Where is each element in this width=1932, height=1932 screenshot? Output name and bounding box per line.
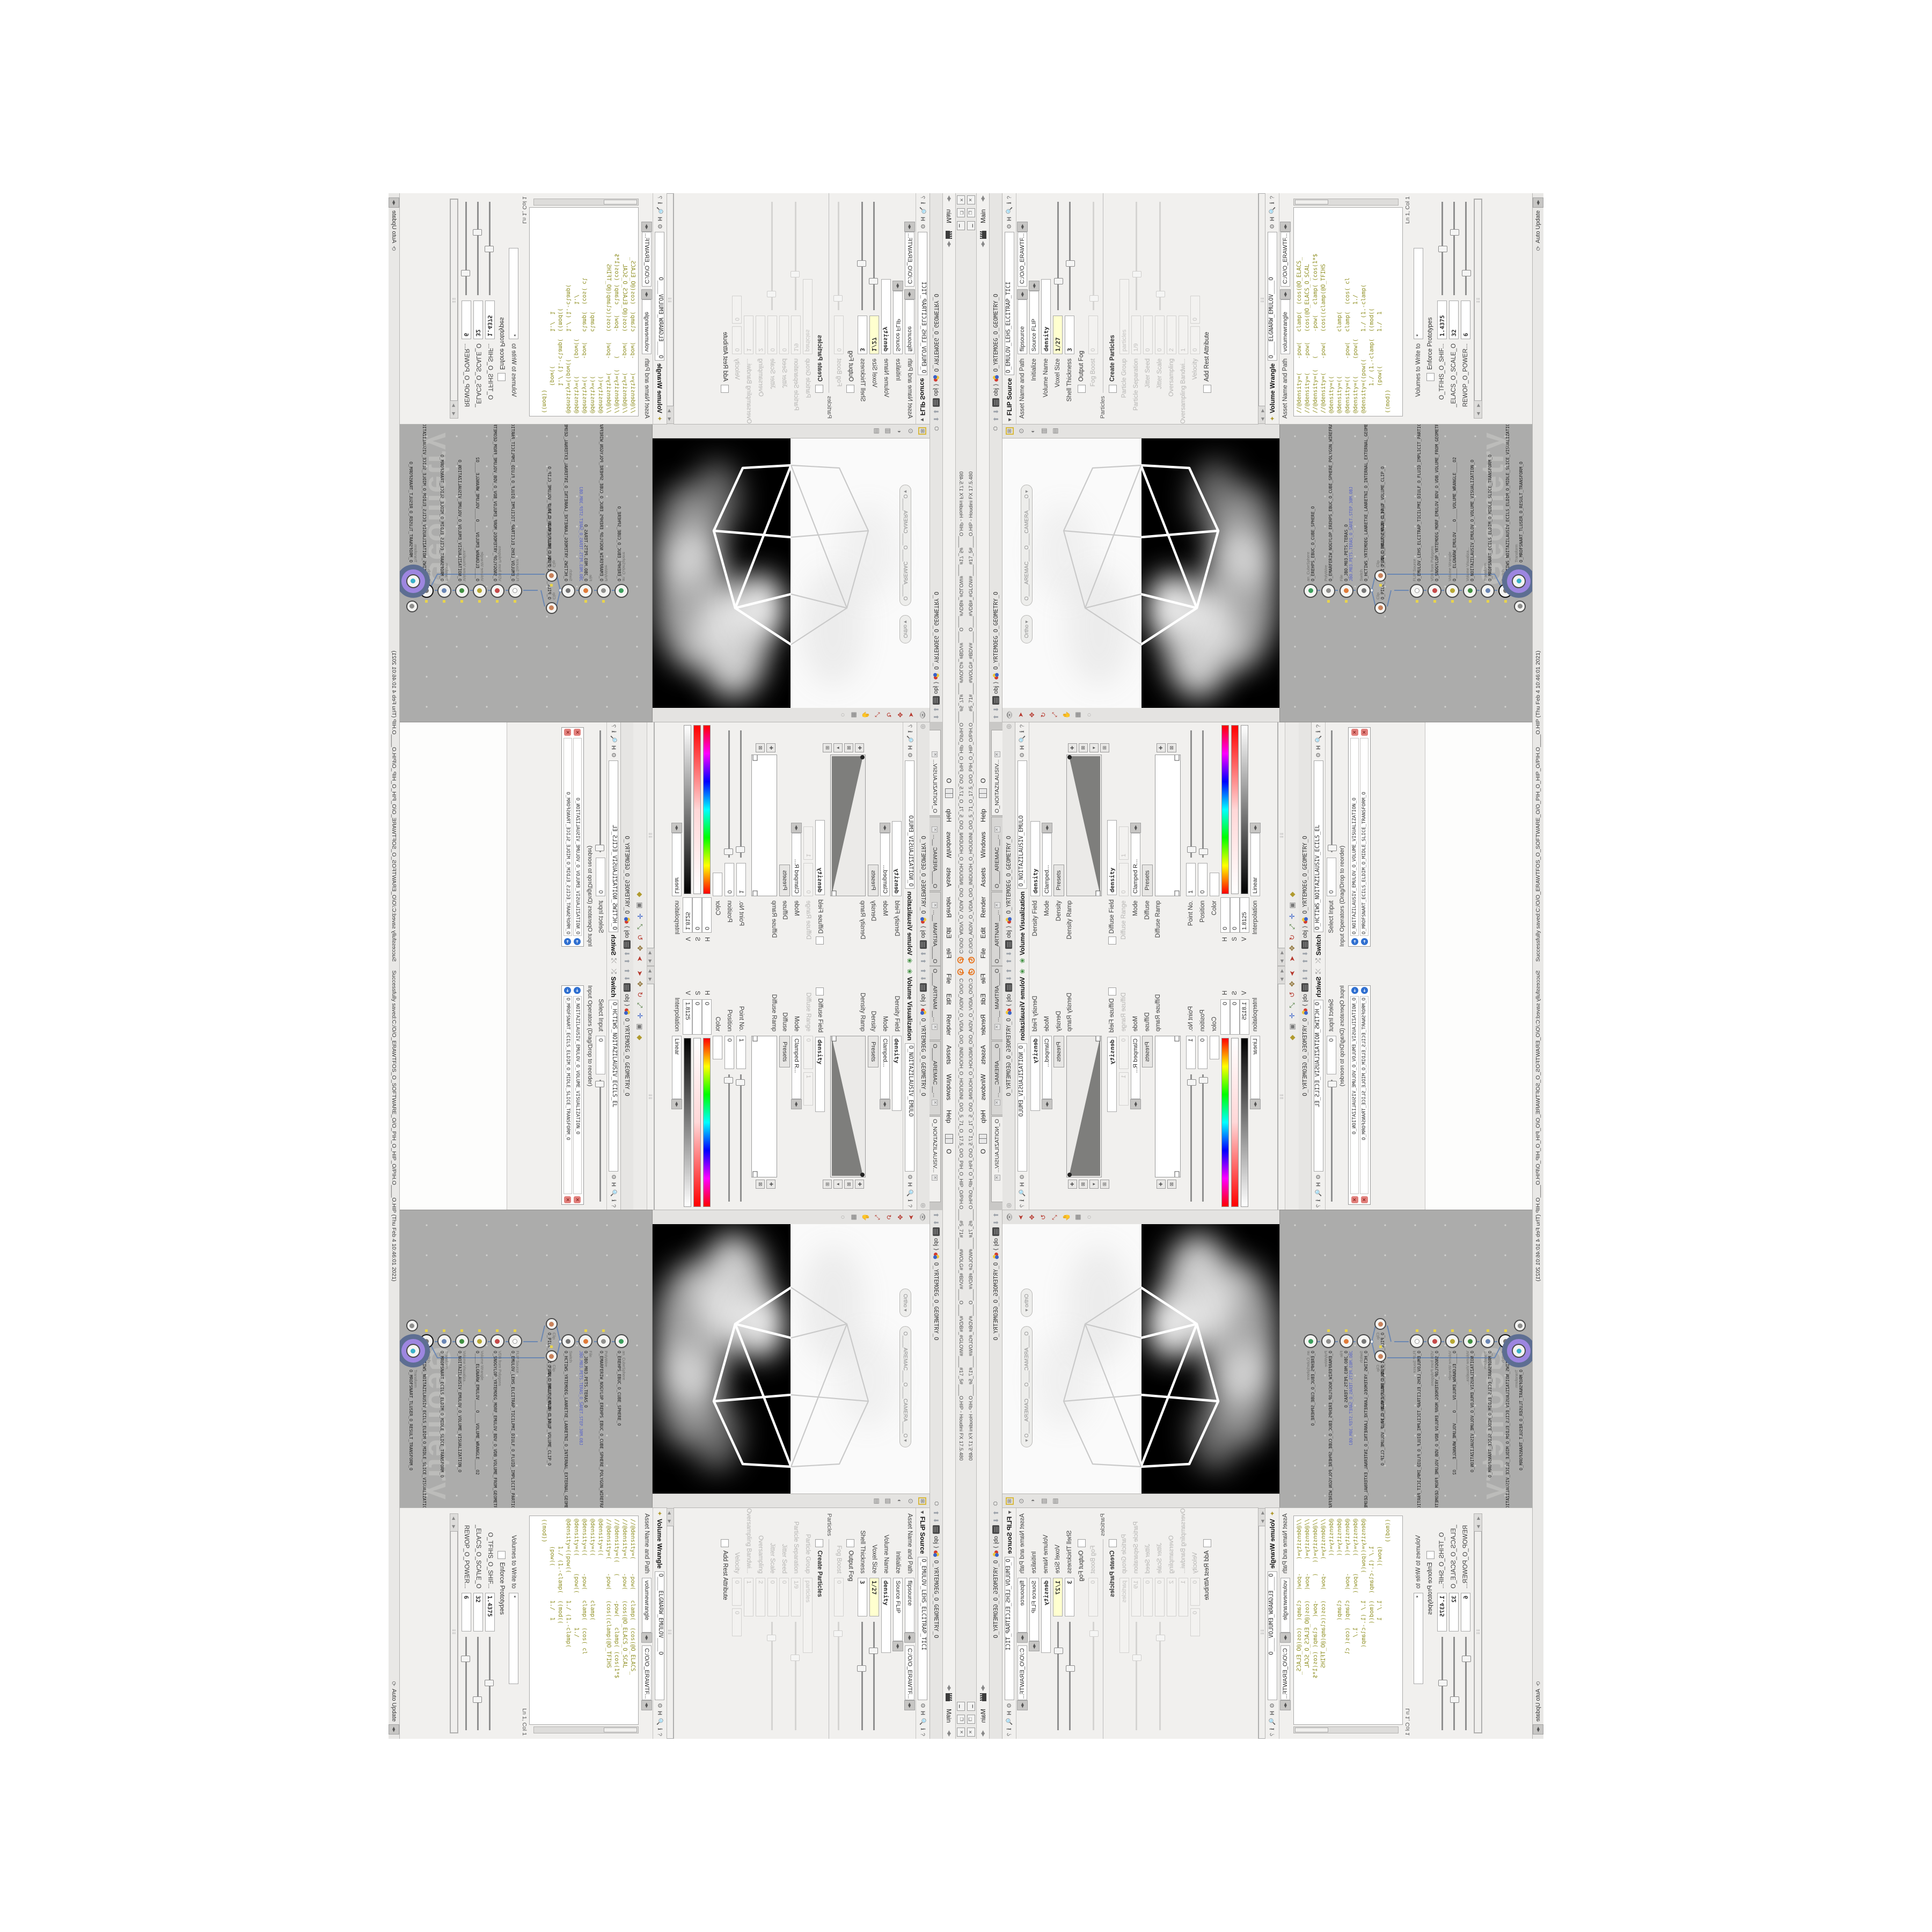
fog-boost-input[interactable]: 0 xyxy=(1088,1578,1098,1616)
info-icon[interactable]: ℹ xyxy=(1315,1199,1322,1202)
handles-tool-icon[interactable]: ✛ xyxy=(1288,1013,1297,1019)
velocity-input-y[interactable]: 0 xyxy=(1190,296,1200,324)
tab-camera[interactable]: O____AREMAC __...✕ xyxy=(930,1041,941,1115)
saturation-input[interactable]: 0 xyxy=(692,897,702,933)
remove-input-icon[interactable]: ✕ xyxy=(1361,729,1368,736)
shell-thickness-input[interactable]: 3 xyxy=(1065,1578,1074,1616)
asset-op-spinner[interactable]: ◀▶ xyxy=(1017,289,1028,299)
asset-op-spinner[interactable]: ◀▶ xyxy=(1017,1633,1028,1643)
initialize-spinner[interactable]: ◀▶ xyxy=(892,281,903,291)
create-particles-checkbox[interactable] xyxy=(816,385,824,393)
info-icon[interactable]: ℹ xyxy=(919,202,926,204)
ramp-expand-icon[interactable]: ⊞ xyxy=(1100,1180,1109,1189)
mode-select[interactable]: Clamped... xyxy=(880,833,890,896)
ramp-add-icon[interactable]: ✚ xyxy=(855,1180,864,1189)
diffuse-range-min[interactable]: 0 xyxy=(803,863,813,896)
diffuse-range-min[interactable]: 0 xyxy=(1119,1036,1129,1069)
info-icon[interactable]: ℹ xyxy=(1269,1728,1276,1730)
ramp-delete-icon[interactable]: ⊠ xyxy=(1079,743,1088,752)
asset-op-spinner[interactable]: ◀▶ xyxy=(1280,289,1291,299)
diffuse-range-min[interactable]: 0 xyxy=(803,1036,813,1069)
network-node[interactable]: an_CubeSphereO_EREHPS_EBUC_O_CUBE_SPHERE… xyxy=(614,1329,628,1426)
switch-name-field[interactable]: O_HCTIWS_NOITAZILAUSIV_ECILS_EL xyxy=(1314,760,1323,932)
asset-op-field[interactable]: flipsource xyxy=(905,1578,914,1633)
nav-down-icon[interactable]: ⬇ xyxy=(1005,951,1013,956)
scroll-left-icon[interactable]: ◀ xyxy=(1260,1509,1265,1517)
tab-close-icon[interactable]: ✕ xyxy=(932,1024,938,1030)
path-node[interactable]: O_YRTEMOEG_O_GEOMETRY_O xyxy=(993,1262,999,1340)
density-field-input[interactable]: density xyxy=(1030,821,1040,896)
network-node[interactable]: FileO_JBO.M03.PETS.TERAS_OJBO.M03.PETS.T… xyxy=(1339,487,1353,603)
lasso-tool-icon[interactable]: ◌ xyxy=(839,1215,847,1219)
network-node-selected[interactable]: TransformO_MROFSNART_TLUSER_O_RESULT_TRA… xyxy=(1512,1339,1526,1470)
view-tool-icon[interactable]: 👁 xyxy=(919,1213,926,1221)
info-icon[interactable]: ℹ xyxy=(656,202,663,204)
path-node[interactable]: O_YRTEMOEG_O_GEOMETRY_O xyxy=(1006,836,1012,913)
value-slider[interactable] xyxy=(1241,1038,1248,1207)
menu-file[interactable]: File xyxy=(945,944,954,963)
volumes-to-write-input[interactable]: * xyxy=(509,248,518,339)
diffuse-mode-spinner[interactable]: ◀▶ xyxy=(791,1099,802,1109)
point-no-slider[interactable] xyxy=(741,1074,742,1202)
density-presets-button[interactable]: Presets xyxy=(1053,1036,1064,1067)
jitter-seed-input[interactable]: 0 xyxy=(1143,316,1153,354)
scroll-left-icon[interactable]: ◀ xyxy=(648,957,653,965)
help-icon[interactable]: ? xyxy=(907,1204,913,1207)
desktop-prev-icon[interactable]: ◀▶ xyxy=(946,242,952,247)
velocity-input-y[interactable]: 0 xyxy=(732,296,742,324)
oversampling-bandwidth-input[interactable]: 1 xyxy=(744,1578,753,1616)
desktop-next-icon[interactable]: ◀▶ xyxy=(980,1730,986,1736)
gear-icon[interactable]: ⚙ xyxy=(1315,1174,1322,1180)
shell-thickness-input[interactable]: 3 xyxy=(1065,316,1074,354)
network-node[interactable]: FileO_JBO.M03.PETS.TERAS_OJBO.M03.PETS.T… xyxy=(1339,1329,1353,1445)
move-tool-icon[interactable]: ✥ xyxy=(636,945,645,951)
nav-up-icon[interactable]: ⬆ xyxy=(624,968,631,974)
reorder-arrow-icon[interactable]: ➜ xyxy=(574,987,581,994)
select-tool-icon[interactable]: ➤ xyxy=(908,1214,915,1220)
power-param-input[interactable]: 6 xyxy=(462,301,471,339)
path-node[interactable]: O_YRTEMOEG_O_GEOMETRY_O xyxy=(993,1560,999,1638)
camera-icon[interactable]: ⊙ xyxy=(907,1498,914,1504)
asset-op-spinner[interactable]: ◀▶ xyxy=(904,1633,915,1643)
search-icon[interactable]: 🔍 xyxy=(1269,207,1276,214)
update-mode-spinner[interactable]: ◀▶ xyxy=(389,197,399,208)
projection-pill[interactable]: Ortho ▾ xyxy=(899,1289,911,1317)
reorder-arrow-icon[interactable]: ➜ xyxy=(1361,938,1368,945)
mode-select[interactable]: Clamped... xyxy=(880,1036,890,1099)
rotate-tool-icon[interactable]: ↻ xyxy=(1040,712,1047,718)
help-icon[interactable]: ? xyxy=(1006,1733,1013,1736)
wrangle-hscrollbar[interactable]: ◀ ▶ ⣿⣿ xyxy=(450,199,458,419)
tab-close-icon[interactable]: ✕ xyxy=(932,1100,938,1106)
mode-spinner[interactable]: ◀▶ xyxy=(880,823,890,833)
network-node[interactable]: TransformO_MROFSNART_ECILS_ELDIM_O_MIDLE… xyxy=(437,455,451,603)
restore-button[interactable]: ❐ xyxy=(967,208,975,217)
scroll-right-icon[interactable]: ▶ xyxy=(452,401,457,409)
reorder-arrow-icon[interactable]: ➜ xyxy=(1351,987,1358,994)
oversampling-input[interactable]: 2 xyxy=(756,1578,765,1616)
code-vscrollbar[interactable] xyxy=(533,1726,639,1733)
network-node[interactable]: Volume Visualiza...O_NOITAZILAUSIV_EMULO… xyxy=(455,460,469,603)
wrangle-hscrollbar[interactable]: ◀ ▶ ⣿⣿ xyxy=(450,1513,458,1733)
nav-down-icon[interactable]: ⬇ xyxy=(920,951,927,956)
ramp-delete-icon[interactable]: ⊠ xyxy=(1079,1180,1088,1189)
desktop-selector[interactable]: Main xyxy=(945,1704,954,1727)
volume-name-input[interactable]: density xyxy=(1041,1578,1051,1653)
saturation-slider[interactable] xyxy=(693,725,701,894)
nav-down-icon[interactable]: ⬇ xyxy=(624,951,631,956)
network-node[interactable]: PolyWireO_EMARFERIW_NOGYLOP_EREHPS_EBUC_… xyxy=(1321,1329,1335,1508)
select-tool-icon[interactable]: ➤ xyxy=(636,956,645,962)
reorder-arrow-icon[interactable]: ➜ xyxy=(1361,987,1368,994)
help-icon[interactable]: ? xyxy=(920,196,926,199)
menu-help[interactable]: Help xyxy=(978,804,988,826)
fog-boost-slider[interactable] xyxy=(838,202,840,310)
network-node[interactable]: SwitchO_HCTIWS_YRTEMOEG_LANRETXE_LANRETN… xyxy=(561,424,575,603)
minimize-button[interactable]: ▁ xyxy=(957,221,965,230)
volumes-to-write-input[interactable]: * xyxy=(1414,248,1423,339)
menu-windows[interactable]: Windows xyxy=(945,1070,954,1104)
jitter-scale-slider[interactable] xyxy=(772,202,773,310)
point-no-slider[interactable] xyxy=(741,730,742,858)
nav-down-icon[interactable]: ⬇ xyxy=(933,1220,940,1225)
particle-separation-slider[interactable] xyxy=(795,202,797,310)
nav-down-icon[interactable]: ⬇ xyxy=(1005,976,1013,981)
particle-group-input[interactable]: particles xyxy=(803,1578,813,1653)
vexpression-editor[interactable]: //@density=( -pow( clamp( (cos(@O_ELACS_… xyxy=(529,207,639,416)
viewport-render[interactable]: Ortho ▾ O____AREMAC____O____CAMERA____O … xyxy=(1002,1224,1280,1494)
ramp-add-icon[interactable]: ✚ xyxy=(1157,1180,1166,1189)
snap-tool-icon[interactable]: ▣ xyxy=(636,1023,645,1030)
path-node[interactable]: O_YRTEMOEG_O_GEOMETRY_O xyxy=(993,294,999,371)
tab-close-icon[interactable]: ✕ xyxy=(994,826,1000,832)
hue-input[interactable]: 0 xyxy=(702,897,712,933)
snapshot-icon[interactable]: ▥ xyxy=(1040,428,1048,434)
snapshot-icon[interactable]: ▥ xyxy=(1040,1498,1048,1504)
ramp-menu-icon[interactable]: ▾ xyxy=(1089,743,1099,752)
network-node[interactable]: ClipO_PILC_EMULOV_FLAH_O_HALF_VOLUME_CLI… xyxy=(546,466,558,587)
diffuse-range-max[interactable]: 1 xyxy=(803,1072,813,1106)
scale-tool-icon[interactable]: ⤢ xyxy=(1051,1214,1059,1220)
grid-toggle-icon[interactable]: ▤ xyxy=(873,428,881,434)
network-node[interactable]: Volume Visualiza...O_NOITAZILAUSIV_EMULO… xyxy=(1463,460,1477,603)
network-node[interactable]: Volume Visualiza...O_NOITAZILAUSIV_EMULO… xyxy=(455,1329,469,1472)
add-rest-checkbox[interactable] xyxy=(1203,1539,1211,1547)
network-node[interactable]: an_CubeSphereO_EREHPS_EBUC_O_CUBE_SPHERE… xyxy=(614,506,628,603)
tab-camera[interactable]: O____AREMAC __...✕ xyxy=(930,817,941,891)
network-node[interactable]: FLIP SourceO_EMULOV_LEHS_ELCITRAP_TICILP… xyxy=(1410,424,1424,603)
path-root[interactable]: obj xyxy=(993,686,999,694)
desktop-prev-icon[interactable]: ◀▶ xyxy=(980,242,986,247)
asset-op-field[interactable]: flipsource xyxy=(905,299,914,354)
pose-tool-icon[interactable]: ✋ xyxy=(1063,1213,1070,1221)
ramp-menu-icon[interactable]: ▾ xyxy=(833,743,843,752)
velocity-input[interactable]: 0 xyxy=(732,326,742,354)
network-node[interactable]: PolyWireO_EMARFERIW_NOGYLOP_EREHPS_EBUC_… xyxy=(1321,424,1335,603)
network-editor[interactable]: Geometry an_C xyxy=(400,424,652,722)
collapse-arrow-icon[interactable]: ▾ xyxy=(1006,418,1013,421)
position-slider[interactable] xyxy=(1202,1074,1204,1202)
scroll-thumb[interactable]: ⣿⣿ xyxy=(647,984,654,1210)
network-node[interactable]: TransformO_MROFSNART_ECILS_ELDIM_O_MIDLE… xyxy=(437,1329,451,1477)
asset-op-spinner[interactable]: ◀▶ xyxy=(1280,1633,1291,1643)
pin-icon[interactable]: ◎ xyxy=(1005,724,1012,729)
search-icon[interactable]: 🔍 xyxy=(919,207,926,214)
move-tool-icon[interactable]: ✥ xyxy=(1288,945,1297,951)
scroll-right-icon[interactable]: ▶ xyxy=(668,406,672,415)
handles-tool-icon[interactable]: ✛ xyxy=(636,1013,645,1019)
tab-close-icon[interactable]: ✕ xyxy=(932,751,938,757)
density-ramp-widget[interactable]: ✚ ⊠ ▾ ⊞ xyxy=(1066,1036,1102,1177)
reorder-arrow-icon[interactable]: ➜ xyxy=(565,938,572,945)
velocity-input[interactable]: 0 xyxy=(1190,1578,1200,1606)
nav-down-icon[interactable]: ⬇ xyxy=(624,976,631,981)
wrangle-hscrollbar[interactable]: ◀ ▶ ⣿⣿ xyxy=(1474,1513,1482,1733)
diffuse-range-max[interactable]: 1 xyxy=(803,826,813,860)
info-icon[interactable]: ℹ xyxy=(610,1199,617,1202)
nav-up-icon[interactable]: ⬆ xyxy=(992,714,1000,720)
output-fog-checkbox[interactable] xyxy=(847,1539,855,1547)
gear-icon[interactable]: ⚙ xyxy=(1006,1703,1013,1708)
oversampling-bandwidth-input[interactable]: 1 xyxy=(744,316,753,354)
menu-assets[interactable]: Assets xyxy=(978,1041,988,1069)
voxel-size-input[interactable]: 1/27 xyxy=(1053,1578,1063,1616)
path-root[interactable]: obj xyxy=(993,1536,999,1544)
value-slider[interactable] xyxy=(1241,725,1248,894)
shell-thickness-slider[interactable] xyxy=(862,1622,863,1730)
viewport-layout-icon[interactable]: ⊞ xyxy=(1006,427,1014,435)
title-bar[interactable]: C:/O/O_AIDIV_O_VDIA_O/O_INIDUOH_O_HOUDIN… xyxy=(966,193,977,966)
enforce-prototypes-checkbox[interactable] xyxy=(1426,1551,1435,1559)
density-field-input[interactable]: density xyxy=(892,821,902,896)
list-item[interactable]: ➜ O_NOITAZILAUSIV_EMULOV_O_VOLUME_VISUAL… xyxy=(1350,987,1359,1203)
create-particles-checkbox[interactable] xyxy=(816,1539,824,1547)
scale-param-slider[interactable] xyxy=(478,202,479,295)
path-root[interactable]: obj xyxy=(933,1238,940,1246)
lasso-tool-icon[interactable]: ◌ xyxy=(1085,713,1093,716)
search-icon[interactable]: 🔍 xyxy=(906,1189,913,1197)
refresh-icon[interactable]: ⟳ xyxy=(1535,246,1542,251)
velocity-input-y[interactable]: 0 xyxy=(1190,1608,1200,1636)
interpolation-spinner[interactable]: ◀▶ xyxy=(1250,823,1261,833)
path-node[interactable]: O_YRTEMOEG_O_GEOMETRY_O xyxy=(1302,836,1308,913)
move-tool-icon[interactable]: ✥ xyxy=(896,712,904,718)
gear-icon[interactable]: ⚙ xyxy=(906,752,913,758)
power-param-input[interactable]: 6 xyxy=(1461,301,1470,339)
diffuse-mode-select[interactable]: Clamped R... xyxy=(1131,1036,1140,1099)
nav-down-icon[interactable]: ⬇ xyxy=(933,707,940,712)
initialize-select[interactable]: Source FLIP xyxy=(1029,1578,1039,1641)
hue-input[interactable]: 0 xyxy=(1220,897,1230,933)
path-root[interactable]: obj xyxy=(993,1238,999,1246)
pose-tool-icon[interactable]: ✋ xyxy=(862,711,869,719)
camera-lock-icon[interactable]: ⛭ xyxy=(933,1501,940,1506)
grid-toggle-icon[interactable]: ▤ xyxy=(873,1498,881,1504)
diffuse-field-checkbox[interactable] xyxy=(816,987,824,996)
network-node[interactable]: FLIP SourceO_EMULOV_LEHS_ELCITRAP_TICILP… xyxy=(508,1329,522,1508)
gear-icon[interactable]: ⚙ xyxy=(1315,752,1322,758)
camera-icon[interactable]: ⊙ xyxy=(1018,1498,1025,1504)
ramp-expand-icon[interactable]: ⊞ xyxy=(823,1180,832,1189)
diffuse-mode-select[interactable]: Clamped R... xyxy=(792,1036,801,1099)
nav-down-icon[interactable]: ⬇ xyxy=(992,707,1000,712)
help-icon[interactable]: ? xyxy=(657,196,663,199)
shell-thickness-input[interactable]: 3 xyxy=(858,316,867,354)
menu-edit[interactable]: Edit xyxy=(978,989,988,1009)
create-particles-checkbox[interactable] xyxy=(1109,1539,1117,1547)
value-slider[interactable] xyxy=(684,725,691,894)
hue-slider[interactable] xyxy=(1221,1038,1229,1207)
network-node[interactable]: Volume WrangleO____ELGNARW_EMULOV____O__… xyxy=(473,1329,487,1475)
handles-tool-icon[interactable]: ✛ xyxy=(636,913,645,919)
select-input-field[interactable]: 0 xyxy=(1327,1036,1336,1074)
display-options-icon[interactable]: ◐ xyxy=(1029,429,1036,433)
diffuse-presets-button[interactable]: Presets xyxy=(779,865,790,896)
value-input[interactable]: 1.8125 xyxy=(683,999,692,1035)
jitter-seed-input[interactable]: 0 xyxy=(779,1578,789,1616)
power-param-input[interactable]: 6 xyxy=(462,1593,471,1631)
update-mode-control[interactable]: ⟳ Auto Update ◀▶ xyxy=(1533,1681,1543,1735)
position-input[interactable]: 0 xyxy=(724,1036,734,1069)
nav-down-icon[interactable]: ⬇ xyxy=(933,1518,940,1523)
nav-up-icon[interactable]: ⬆ xyxy=(992,1510,1000,1516)
network-node-selected[interactable]: TransformO_MROFSNART_TLUSER_O_RESULT_TRA… xyxy=(406,462,420,593)
gear-icon[interactable]: ⚙ xyxy=(1006,224,1013,229)
viewport-layout-icon[interactable]: ⊞ xyxy=(1006,1497,1014,1505)
help-icon[interactable]: ? xyxy=(1269,196,1276,199)
path-node[interactable]: O_YRTEMOEG_O_GEOMETRY_O xyxy=(624,836,631,913)
tab-mantra[interactable]: O____ARTNAM __...✕ xyxy=(991,966,1002,1040)
diffuse-mode-spinner[interactable]: ◀▶ xyxy=(1130,1099,1141,1109)
mode-select[interactable]: Clamped... xyxy=(1042,1036,1052,1099)
path-node[interactable]: O_YRTEMOEG_O_GEOMETRY_O xyxy=(993,591,999,669)
desktop-selector[interactable]: Main xyxy=(978,205,988,228)
initialize-select[interactable]: Source FLIP xyxy=(1029,291,1039,354)
pin-icon[interactable]: ◎ xyxy=(1005,1203,1012,1208)
nav-down-icon[interactable]: ⬇ xyxy=(1301,976,1309,981)
gear-icon[interactable]: ⚙ xyxy=(1269,1703,1276,1708)
network-node[interactable]: Volume WrangleO____ELGNARW_EMULOV____O__… xyxy=(1445,457,1459,603)
display-options-icon[interactable]: ◐ xyxy=(1029,1499,1036,1503)
gear-icon[interactable]: ⚙ xyxy=(906,1174,913,1180)
close-button[interactable]: ✕ xyxy=(957,195,965,204)
ramp-add-icon[interactable]: ✚ xyxy=(1157,743,1166,752)
scale-tool-icon[interactable]: ⤢ xyxy=(873,712,881,718)
nav-down-icon[interactable]: ⬇ xyxy=(992,1518,1000,1523)
network-node[interactable]: SwitchO_HCTIWS_YRTEMOEG_LANRETXE_LANRETN… xyxy=(1357,424,1371,603)
network-node[interactable]: ClipO_PILC_EMULOV_FLAH_O_HALF_VOLUME_CLI… xyxy=(1374,1345,1386,1466)
search-icon[interactable]: 🔍 xyxy=(656,207,663,214)
shift-param-slider[interactable] xyxy=(1441,1637,1443,1730)
diffuse-field-checkbox[interactable] xyxy=(1108,987,1116,996)
list-item[interactable]: ➜ O_MROFSNART_ECILS_ELDIM_O_MIDLE_SLICE_… xyxy=(1359,729,1369,945)
snap-grid-icon[interactable]: ▦ xyxy=(851,712,858,718)
scale-param-slider[interactable] xyxy=(1453,202,1455,295)
diffuse-range-max[interactable]: 1 xyxy=(1119,826,1129,860)
desktop-selector[interactable]: Main xyxy=(945,205,954,228)
snapshot-icon[interactable]: ▥ xyxy=(884,1498,892,1504)
interpolation-spinner[interactable]: ◀▶ xyxy=(671,823,682,833)
search-icon[interactable]: 🔍 xyxy=(906,735,913,743)
voxel-size-input[interactable]: 1/27 xyxy=(869,316,879,354)
asset-op-field[interactable]: volumewrangle xyxy=(1280,1578,1290,1633)
menu-edit[interactable]: Edit xyxy=(978,923,988,943)
shift-param-slider[interactable] xyxy=(489,1637,491,1730)
position-input[interactable]: 0 xyxy=(1198,863,1207,896)
search-icon[interactable]: 🔍 xyxy=(1315,735,1322,743)
initialize-select[interactable]: Source FLIP xyxy=(893,1578,903,1641)
saturation-slider[interactable] xyxy=(1231,1038,1239,1207)
camera-lock-icon[interactable]: ⛭ xyxy=(992,1501,999,1506)
enforce-prototypes-checkbox[interactable] xyxy=(498,373,506,381)
diffuse-field-input[interactable]: density xyxy=(815,820,825,895)
scroll-right-icon[interactable]: ▶ xyxy=(1279,975,1284,984)
scroll-right-icon[interactable]: ▶ xyxy=(1260,406,1265,415)
menu-file[interactable]: File xyxy=(945,969,954,988)
path-root[interactable]: obj xyxy=(624,930,631,938)
nav-up-icon[interactable]: ⬆ xyxy=(1005,958,1013,964)
mode-spinner[interactable]: ◀▶ xyxy=(880,1099,890,1109)
network-node[interactable]: an_CubeSphereO_EREHPS_EBUC_O_CUBE_SPHERE… xyxy=(1304,506,1318,603)
gear-icon[interactable]: ⚙ xyxy=(610,752,617,758)
scroll-right-icon[interactable]: ▶ xyxy=(452,1523,457,1531)
info-icon[interactable]: ℹ xyxy=(1269,202,1276,204)
path-node[interactable]: O_YRTEMOEG_O_GEOMETRY_O xyxy=(920,836,927,913)
path-root[interactable]: obj xyxy=(933,388,940,396)
select-tool-icon[interactable]: ➤ xyxy=(1288,970,1297,976)
ramp-delete-icon[interactable]: ⊠ xyxy=(756,1180,765,1189)
select-input-slider[interactable] xyxy=(1331,730,1333,852)
diffuse-field-input[interactable]: density xyxy=(1107,820,1117,895)
minimize-button[interactable]: ▁ xyxy=(967,221,975,230)
add-rest-checkbox[interactable] xyxy=(721,1539,729,1547)
close-button[interactable]: ✕ xyxy=(957,1728,965,1737)
remove-input-icon[interactable]: ✕ xyxy=(565,1196,572,1203)
grid-toggle-icon[interactable]: ▤ xyxy=(1051,1498,1059,1504)
gear-icon[interactable]: ⚙ xyxy=(610,1174,617,1180)
path-node[interactable]: O_YRTEMOEG_O_GEOMETRY_O xyxy=(933,1262,940,1340)
nav-down-icon[interactable]: ⬇ xyxy=(992,1220,1000,1225)
desktop-layout-icon[interactable] xyxy=(979,788,987,798)
network-node[interactable]: TransformO_MROFSNART_ECILS_ELDIM_O_MIDLE… xyxy=(1481,1329,1495,1477)
asset-path-field[interactable]: C:/O/O_ERAWTF... xyxy=(905,1645,914,1700)
tab-visualization[interactable]: O_NOITAZILAUSIV...✕ xyxy=(930,1116,941,1202)
oversampling-input[interactable]: 2 xyxy=(756,316,765,354)
network-node[interactable]: FileO_JBO.M03.PETS.TERAS_OJBO.M03.PETS.T… xyxy=(579,1329,593,1445)
interpolation-select[interactable]: Linear xyxy=(1250,833,1260,896)
render-tool-icon[interactable]: ◆ xyxy=(1288,892,1297,897)
ramp-delete-icon[interactable]: ⊠ xyxy=(1167,1180,1176,1189)
ramp-add-icon[interactable]: ✚ xyxy=(855,743,864,752)
snap-grid-icon[interactable]: ▦ xyxy=(1074,1214,1081,1220)
position-slider[interactable] xyxy=(729,730,730,858)
help-icon[interactable]: ? xyxy=(611,724,617,728)
wrangle-name-field[interactable]: O____ELGNARW_EMULOV____O xyxy=(1268,232,1277,361)
path-node[interactable]: O_YRTEMOEG_O_GEOMETRY_O xyxy=(1302,1018,1308,1096)
restore-button[interactable]: ❐ xyxy=(957,1715,965,1724)
position-input[interactable]: 0 xyxy=(724,863,734,896)
refresh-icon[interactable]: ⟳ xyxy=(391,1681,398,1686)
tab-visualization[interactable]: O_NOITAZILAUSIV...✕ xyxy=(991,1116,1002,1202)
nav-up-icon[interactable]: ⬆ xyxy=(992,416,1000,422)
tab-mantra[interactable]: O____ARTNAM __...✕ xyxy=(930,966,941,1040)
select-input-field[interactable]: 0 xyxy=(596,1036,605,1074)
scroll-right-icon[interactable]: ▶ xyxy=(1279,948,1284,957)
asset-op-spinner[interactable]: ◀▶ xyxy=(641,289,652,299)
update-mode-spinner[interactable]: ◀▶ xyxy=(389,1724,399,1735)
desktop-next-icon[interactable]: ◀▶ xyxy=(946,196,952,202)
